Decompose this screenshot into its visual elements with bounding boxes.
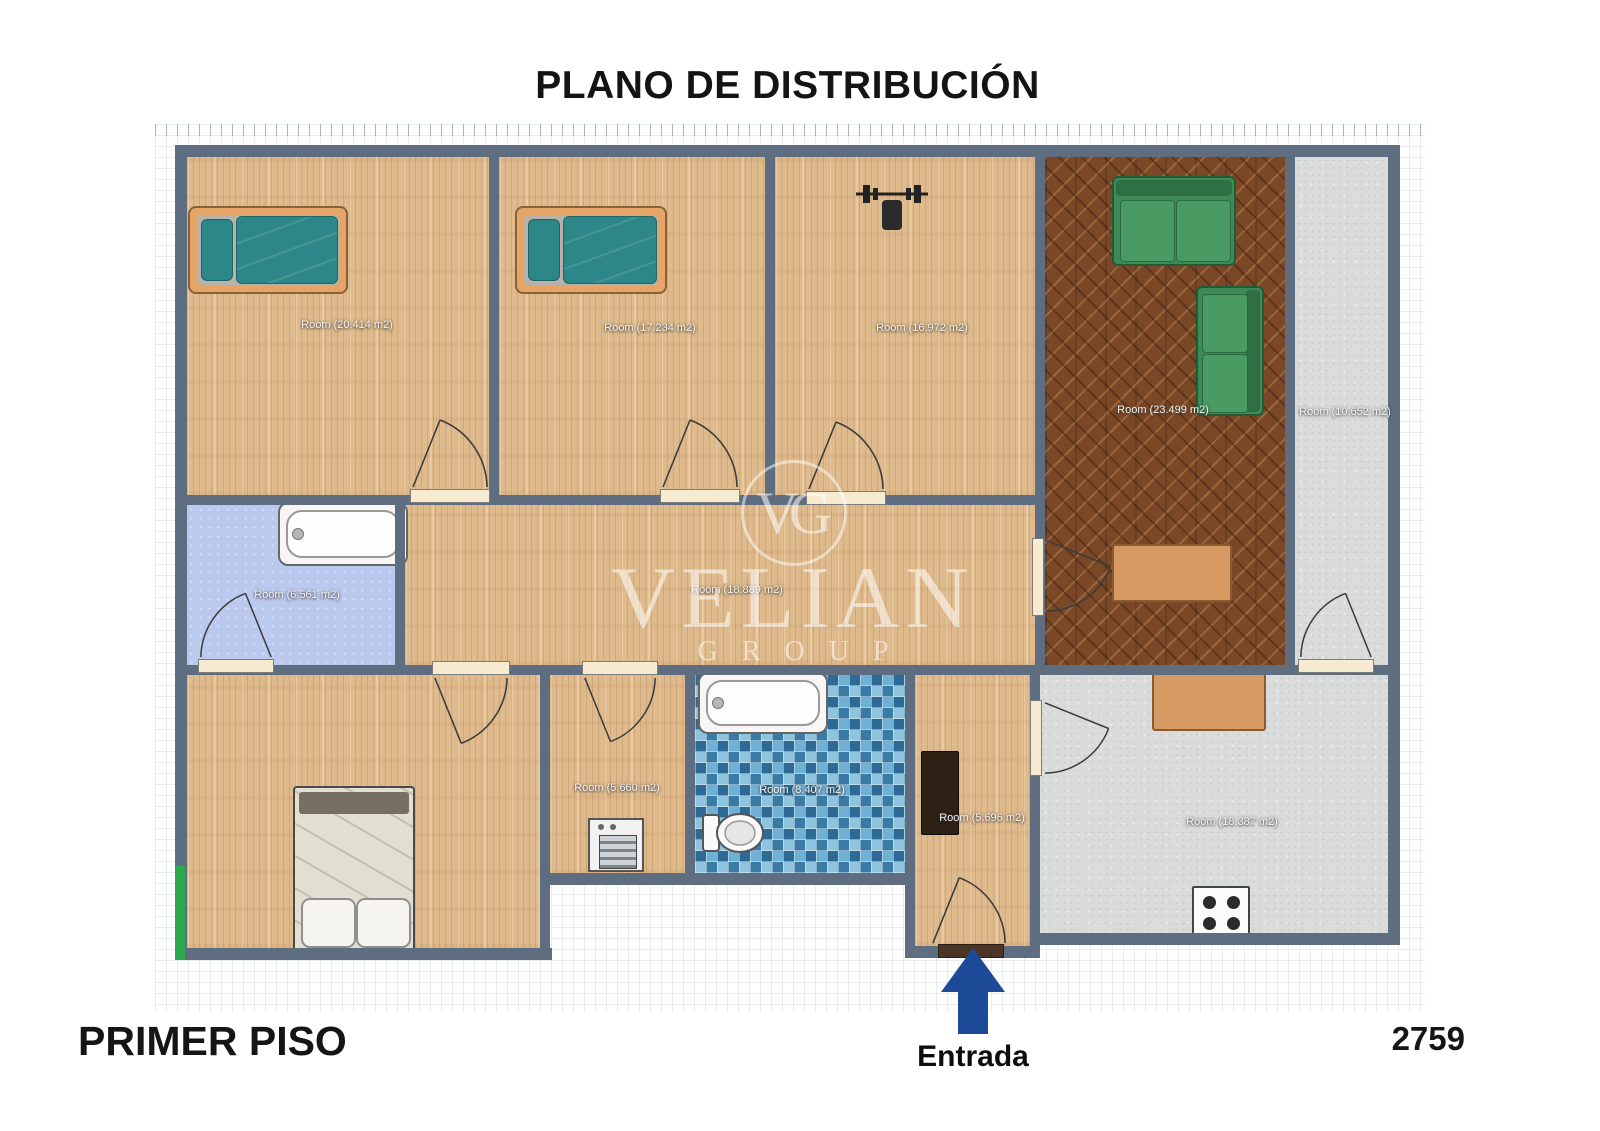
room-label-gym: Room (16.972 m2) xyxy=(876,322,968,334)
wall-mid-upper xyxy=(175,495,1045,505)
wall-bed1-bed2 xyxy=(489,145,499,505)
room-label-bedroom-1: Room (20.414 m2) xyxy=(301,319,393,331)
door-threshold-kitchen xyxy=(1030,700,1042,776)
wall-outer-right xyxy=(1388,145,1400,945)
sofa-cushion xyxy=(1120,200,1175,262)
wall-bottom-laundry-bath2 xyxy=(540,873,915,885)
room-label-living: Room (23.499 m2) xyxy=(1117,404,1209,416)
entrance-arrow-icon xyxy=(941,948,1005,992)
bed-pillow xyxy=(528,219,560,281)
washing-machine-icon xyxy=(588,818,644,872)
door-threshold-master xyxy=(432,661,510,675)
bed-pillow xyxy=(201,219,233,281)
room-label-entry-hall: Room (5.696 m2) xyxy=(939,812,1025,824)
door-arc-entrance xyxy=(930,866,1008,944)
washer-knob xyxy=(598,824,604,830)
entrance-label: Entrada xyxy=(873,1040,1073,1074)
burner xyxy=(1203,917,1216,930)
toilet-icon xyxy=(701,808,767,858)
bed-pillow xyxy=(356,898,411,948)
bed-blanket xyxy=(236,216,338,284)
double-bed-icon xyxy=(293,786,415,956)
faucet-icon xyxy=(712,697,724,709)
floor-label: PRIMER PISO xyxy=(78,1018,347,1065)
bed-icon xyxy=(515,206,667,294)
door-arc-master xyxy=(432,677,510,755)
kitchen-counter-icon xyxy=(1152,673,1266,731)
bed-icon xyxy=(188,206,348,294)
washer-door xyxy=(599,835,637,869)
plan-number: 2759 xyxy=(1330,1020,1465,1058)
wall-bottom-master xyxy=(175,948,552,960)
wall-bed2-gym xyxy=(765,145,775,505)
bathtub-icon xyxy=(698,672,828,734)
floor-plan-page: PLANO DE DISTRIBUCIÓN xyxy=(0,0,1600,1131)
washer-knob xyxy=(610,824,616,830)
gym-equipment-icon xyxy=(850,182,934,234)
bed-pillow xyxy=(301,898,356,948)
ruler-ticks xyxy=(155,124,1425,136)
wall-bath2-entry xyxy=(905,665,915,958)
wall-bath1-hallway xyxy=(395,495,405,675)
room-label-bathroom-2: Room (8.407 m2) xyxy=(759,784,845,796)
watermark-name: VELIAN xyxy=(543,548,1043,649)
door-arc-living xyxy=(1046,538,1122,614)
door-threshold-bedroom-2 xyxy=(660,489,740,503)
sofa-icon xyxy=(1112,176,1236,266)
faucet-icon xyxy=(292,528,304,540)
wall-bottom-kitchen xyxy=(1030,933,1400,945)
bathtub-icon xyxy=(278,502,408,566)
wall-outer-top xyxy=(175,145,1400,157)
door-threshold-bedroom-1 xyxy=(410,489,490,503)
door-threshold-storage xyxy=(1298,659,1374,673)
room-label-laundry: Room (5.660 m2) xyxy=(574,782,660,794)
room-label-bathroom-1: Room (6.561 m2) xyxy=(254,589,340,601)
burner xyxy=(1227,896,1240,909)
door-arc-laundry xyxy=(582,677,658,753)
room-label-bedroom-2: Room (17.234 m2) xyxy=(604,322,696,334)
sofa-backrest xyxy=(1246,290,1260,412)
coffee-table-icon xyxy=(1112,544,1232,602)
door-threshold-bathroom-1 xyxy=(198,659,274,673)
wall-master-laundry xyxy=(540,665,550,960)
sofa-cushion xyxy=(1202,294,1248,353)
watermark-subtitle: GROUP xyxy=(543,636,1043,668)
door-arc-bedroom-1 xyxy=(410,408,490,488)
burner xyxy=(1203,896,1216,909)
page-title: PLANO DE DISTRIBUCIÓN xyxy=(0,64,1575,108)
room-label-storage: Room (10.652 m2) xyxy=(1299,406,1391,418)
sofa-cushion xyxy=(1176,200,1231,262)
wall-living-storage xyxy=(1285,145,1295,675)
burner xyxy=(1227,917,1240,930)
sofa-backrest xyxy=(1116,180,1232,196)
door-arc-storage xyxy=(1298,582,1374,658)
bed-blanket xyxy=(299,792,409,814)
green-wall-accent xyxy=(175,866,185,960)
wall-outer-left xyxy=(175,145,187,960)
door-arc-bedroom-2 xyxy=(660,408,740,488)
bed-blanket xyxy=(563,216,657,284)
room-label-kitchen: Room (18.387 m2) xyxy=(1186,816,1278,828)
stove-icon xyxy=(1192,886,1250,938)
wall-laundry-bath2 xyxy=(685,665,695,883)
sofa-icon xyxy=(1196,286,1264,416)
entrance-arrow-shaft xyxy=(958,988,988,1034)
door-arc-kitchen xyxy=(1044,700,1120,776)
